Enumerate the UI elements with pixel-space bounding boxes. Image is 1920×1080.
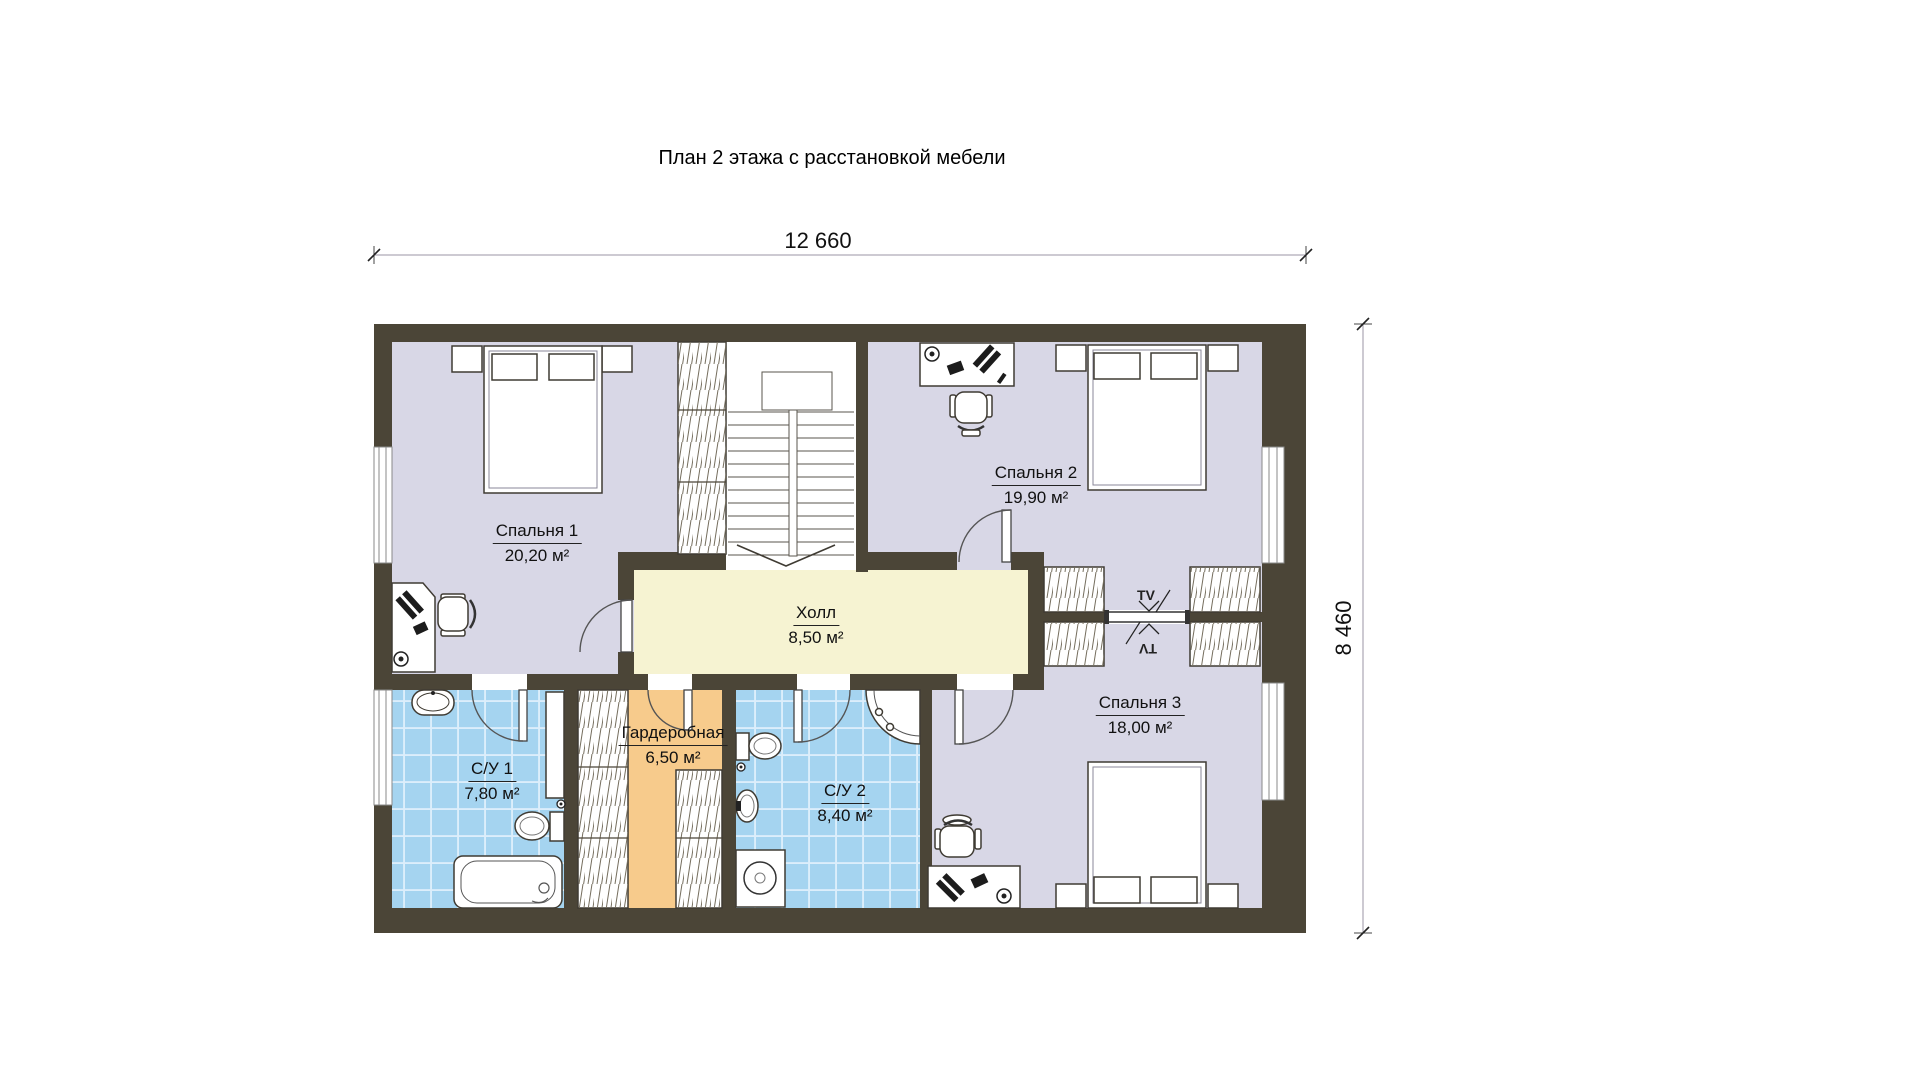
bath1-cabinet xyxy=(546,692,564,798)
window-bedroom3 xyxy=(1262,683,1284,800)
room-area: 7,80 м² xyxy=(464,782,519,805)
room-area: 8,40 м² xyxy=(817,804,872,827)
room-area: 18,00 м² xyxy=(1096,716,1185,739)
pillow xyxy=(492,354,537,380)
bath2-washing-machine xyxy=(736,850,785,907)
pillow xyxy=(1094,353,1140,379)
room-label-hall: Холл 8,50 м² xyxy=(788,602,843,649)
room-name: С/У 1 xyxy=(468,758,516,782)
room-label-bedroom1: Спальня 1 20,20 м² xyxy=(493,520,582,567)
dimension-height-label: 8 460 xyxy=(1331,600,1356,655)
room-label-bedroom3: Спальня 3 18,00 м² xyxy=(1096,692,1185,739)
room-label-dressing: Гардеробная 6,50 м² xyxy=(619,722,728,769)
dimension-horizontal: 12 660 xyxy=(368,228,1312,264)
wardrobe-unit-tv-right-bottom xyxy=(1190,622,1260,666)
room-label-bedroom2: Спальня 2 19,90 м² xyxy=(992,462,1081,509)
pillow xyxy=(1151,353,1197,379)
room-area: 19,90 м² xyxy=(992,486,1081,509)
room-area: 6,50 м² xyxy=(619,746,728,769)
room-name: Спальня 1 xyxy=(493,520,582,544)
nightstand xyxy=(602,346,632,372)
wardrobe-unit-tv-right-top xyxy=(1190,567,1260,612)
window-bath1 xyxy=(374,690,392,805)
room-name: Холл xyxy=(793,602,839,626)
room-name: Гардеробная xyxy=(619,722,728,746)
bath1-bathtub xyxy=(454,856,562,908)
tv-label-bottom: TV xyxy=(1138,641,1157,657)
pillow xyxy=(549,354,594,380)
wardrobe-unit-tv-left-bottom xyxy=(1044,622,1104,666)
bedroom3-desk xyxy=(928,866,1020,908)
room-name: С/У 2 xyxy=(821,780,869,804)
nightstand xyxy=(452,346,482,372)
window-bedroom1 xyxy=(374,447,392,563)
dimension-width-label: 12 660 xyxy=(784,228,851,253)
pillow xyxy=(1094,877,1140,903)
bath1-sink xyxy=(412,690,454,715)
room-label-bath1: С/У 1 7,80 м² xyxy=(464,758,519,805)
floor-plan-page: План 2 этажа с расстановкой мебели xyxy=(0,0,1920,1080)
dimension-vertical: 8 460 xyxy=(1331,318,1372,939)
tv-label-top: TV xyxy=(1137,587,1156,603)
room-label-bath2: С/У 2 8,40 м² xyxy=(817,780,872,827)
bedroom2-desk xyxy=(920,343,1014,386)
room-area: 20,20 м² xyxy=(493,544,582,567)
bedroom1-desk xyxy=(392,583,435,672)
wardrobe-unit-dressing-right xyxy=(676,770,722,908)
room-area: 8,50 м² xyxy=(788,626,843,649)
nightstand xyxy=(1056,884,1086,908)
wardrobe-unit-stair-column xyxy=(678,342,726,554)
bath2-sink xyxy=(736,790,758,822)
room-name: Спальня 2 xyxy=(992,462,1081,486)
window-bedroom2 xyxy=(1262,447,1284,563)
tv-niche xyxy=(1104,610,1190,624)
nightstand xyxy=(1208,884,1238,908)
room-name: Спальня 3 xyxy=(1096,692,1185,716)
floor-plan-canvas: TV TV 12 660 8 460 xyxy=(0,0,1920,1080)
wardrobe-unit-tv-left-top xyxy=(1044,567,1104,612)
nightstand xyxy=(1056,345,1086,371)
pillow xyxy=(1151,877,1197,903)
nightstand xyxy=(1208,345,1238,371)
